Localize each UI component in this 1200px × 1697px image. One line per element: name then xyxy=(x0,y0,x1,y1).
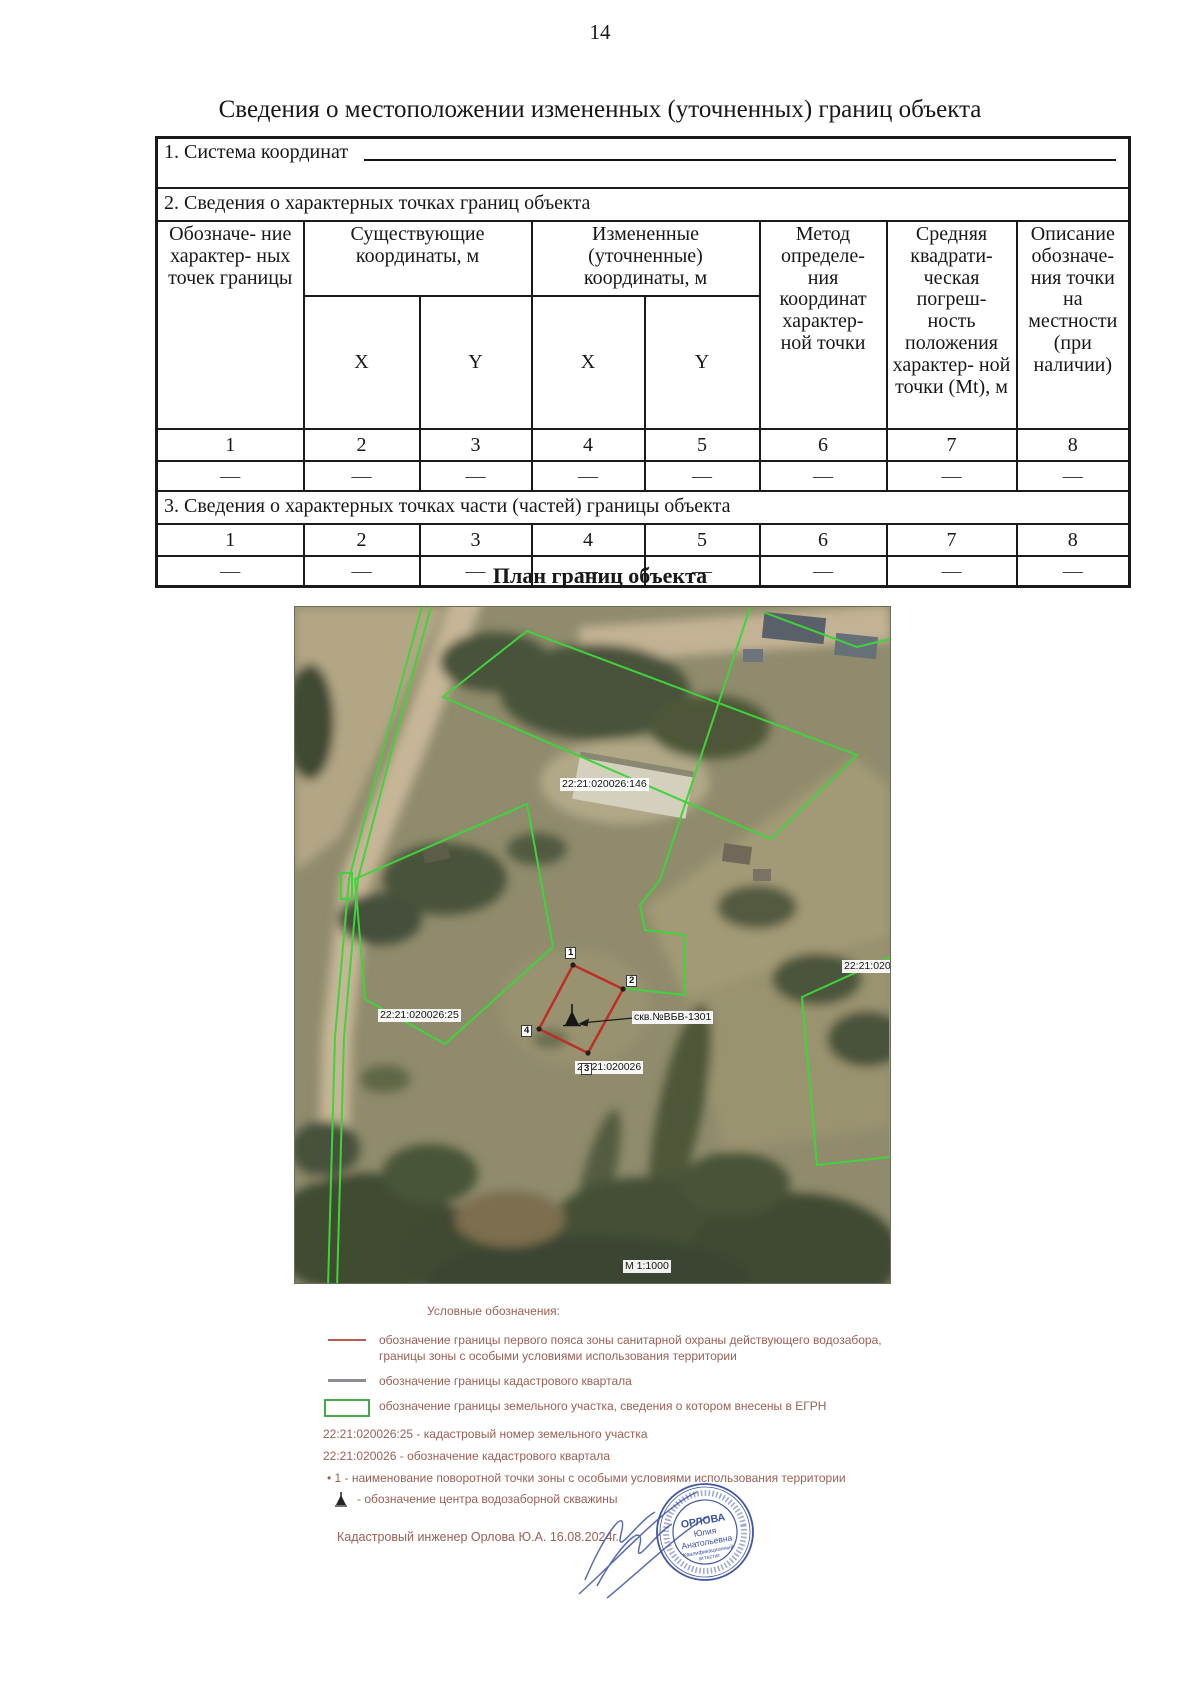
map-label-parcel-25: 22:21:020026:25 xyxy=(378,1009,461,1022)
plan-heading: План границ объекта xyxy=(0,563,1200,589)
section3-heading: 3. Сведения о характерных точках части (… xyxy=(157,491,1130,524)
blank-space xyxy=(164,164,1122,182)
document-page: 14 Сведения о местоположении измененных … xyxy=(0,0,1200,1697)
table-cell: 8 xyxy=(1017,429,1130,461)
table-cell: — xyxy=(1017,461,1130,491)
blank-fill-line xyxy=(364,159,1116,161)
header-y-changed: Y xyxy=(645,296,760,429)
table-cell: — xyxy=(760,461,887,491)
legend-red-line-text-1: обозначение границы первого пояса зоны с… xyxy=(379,1332,882,1348)
table-cell: — xyxy=(645,461,760,491)
header-x-existing: X xyxy=(304,296,420,429)
header-changed-coords: Измененные (уточненные) координаты, м xyxy=(532,221,760,296)
table-cell: — xyxy=(887,461,1017,491)
header-method: Метод определе- ния координат характер- … xyxy=(760,221,887,429)
coordinate-system-row: 1. Система координат xyxy=(157,138,1130,189)
column-number-row: 1 2 3 4 5 6 7 8 xyxy=(157,524,1130,556)
table-cell: 3 xyxy=(420,524,532,556)
header-point-designation: Обозначе- ние характер- ных точек границ… xyxy=(157,221,304,429)
map-point-3: 3 xyxy=(581,1063,592,1075)
table-cell: — xyxy=(157,461,304,491)
legend-red-line-text-2: границы зоны с особыми условиями использ… xyxy=(379,1348,882,1364)
map-point-4: 4 xyxy=(521,1025,532,1037)
table-cell: 5 xyxy=(645,524,760,556)
table-cell: 4 xyxy=(532,429,645,461)
coordinate-system-label: 1. Система координат xyxy=(164,142,348,164)
legend-gray-line-text: обозначение границы кадастрового квартал… xyxy=(379,1373,632,1389)
page-number: 14 xyxy=(0,20,1200,45)
document-title: Сведения о местоположении измененных (ут… xyxy=(0,96,1200,124)
column-number-row: 1 2 3 4 5 6 7 8 xyxy=(157,429,1130,461)
section2-heading: 2. Сведения о характерных точках границ … xyxy=(157,188,1130,221)
map-point-1: 1 xyxy=(565,947,576,959)
table-cell: 1 xyxy=(157,429,304,461)
table-cell: 3 xyxy=(420,429,532,461)
boundary-points-table: 1. Система координат 2. Сведения о харак… xyxy=(155,136,1131,588)
table-cell: — xyxy=(420,461,532,491)
legend-green-rect-text: обозначение границы земельного участка, … xyxy=(379,1398,826,1414)
header-description: Описание обозначе- ния точки на местност… xyxy=(1017,221,1130,429)
table-cell: 4 xyxy=(532,524,645,556)
gray-line-sample xyxy=(315,1373,379,1382)
table-cell: 5 xyxy=(645,429,760,461)
map-point-2: 2 xyxy=(626,975,637,987)
table-cell: 2 xyxy=(304,524,420,556)
well-symbol-icon xyxy=(335,1492,347,1507)
table-cell: 1 xyxy=(157,524,304,556)
table-cell: 8 xyxy=(1017,524,1130,556)
signature-and-stamp: ОРЛОВА Юлия Анатольевна Квалификационный… xyxy=(577,1462,807,1612)
red-line-sample xyxy=(315,1332,379,1341)
boundary-plan-map: 22:21:020026:146 22:21:020026:395 22:21:… xyxy=(295,607,890,1283)
header-x-changed: X xyxy=(532,296,645,429)
table-cell: 6 xyxy=(760,429,887,461)
round-stamp: ОРЛОВА Юлия Анатольевна Квалификационный… xyxy=(649,1476,760,1587)
satellite-imagery xyxy=(295,607,890,1283)
empty-data-row: — — — — — — — — xyxy=(157,461,1130,491)
table-cell: 7 xyxy=(887,524,1017,556)
legend-parcel-note: 22:21:020026:25 - кадастровый номер земе… xyxy=(315,1426,1125,1442)
header-existing-coords: Существующие координаты, м xyxy=(304,221,532,296)
table-cell: — xyxy=(304,461,420,491)
legend-row-parcel-boundary: обозначение границы земельного участка, … xyxy=(315,1398,1125,1417)
table-cell: 6 xyxy=(760,524,887,556)
green-rect-sample xyxy=(315,1398,379,1417)
table-cell: 7 xyxy=(887,429,1017,461)
legend-row-sanitary-boundary: обозначение границы первого пояса зоны с… xyxy=(315,1332,1125,1364)
map-label-parcel-146: 22:21:020026:146 xyxy=(560,778,649,791)
map-label-well: скв.№ВБВ-1301 xyxy=(632,1011,713,1024)
legend-title: Условные обозначения: xyxy=(427,1303,1125,1319)
table-cell: 2 xyxy=(304,429,420,461)
legend-row-quarter-boundary: обозначение границы кадастрового квартал… xyxy=(315,1373,1125,1389)
header-y-existing: Y xyxy=(420,296,532,429)
header-error: Средняя квадрати- ческая погреш- ность п… xyxy=(887,221,1017,429)
map-scale-label: М 1:1000 xyxy=(623,1260,671,1273)
map-label-parcel-395: 22:21:020026:395 xyxy=(842,960,890,973)
table-cell: — xyxy=(532,461,645,491)
